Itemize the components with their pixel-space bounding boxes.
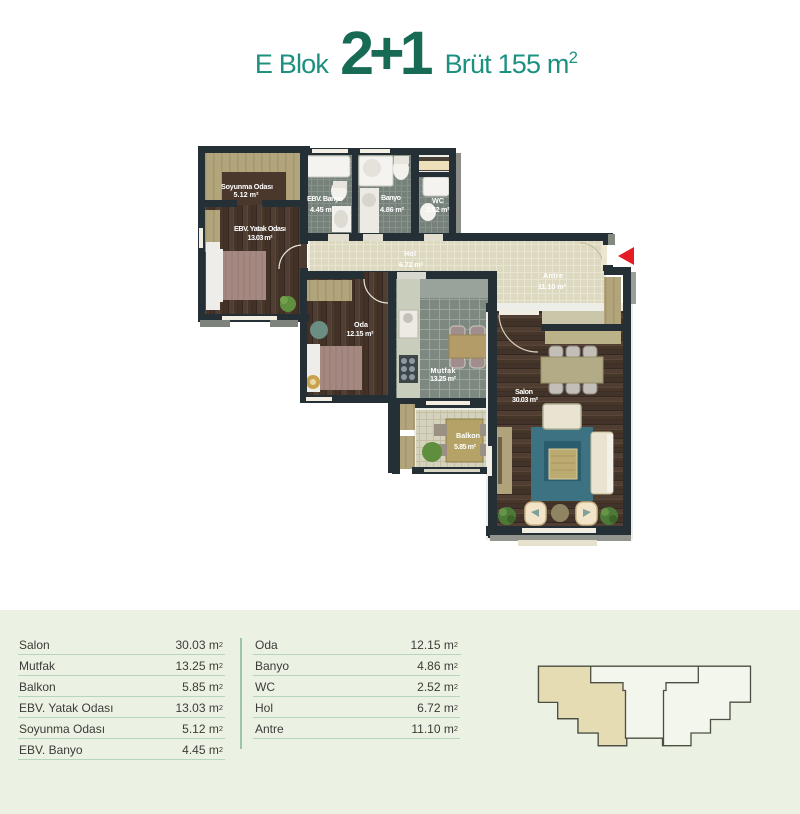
svg-text:Balkon: Balkon bbox=[456, 431, 480, 440]
svg-text:EBV. Banyo: EBV. Banyo bbox=[307, 194, 344, 203]
svg-text:12.15 m²: 12.15 m² bbox=[347, 329, 375, 338]
svg-text:11.10 m²: 11.10 m² bbox=[538, 282, 567, 291]
svg-text:EBV. Yatak Odası: EBV. Yatak Odası bbox=[234, 224, 286, 233]
svg-text:Hol: Hol bbox=[404, 249, 416, 258]
svg-text:6.72 m²: 6.72 m² bbox=[399, 260, 424, 269]
svg-text:5.12 m²: 5.12 m² bbox=[234, 190, 260, 199]
svg-text:4.45 m²: 4.45 m² bbox=[310, 205, 335, 214]
svg-text:5.85 m²: 5.85 m² bbox=[454, 442, 477, 451]
svg-text:13.25 m²: 13.25 m² bbox=[430, 374, 457, 383]
svg-text:13.03 m²: 13.03 m² bbox=[248, 233, 274, 242]
svg-text:Antre: Antre bbox=[543, 271, 563, 280]
svg-text:4.86 m²: 4.86 m² bbox=[380, 205, 405, 214]
svg-text:Banyo: Banyo bbox=[381, 193, 402, 202]
svg-text:Oda: Oda bbox=[354, 320, 369, 329]
svg-text:30.03 m²: 30.03 m² bbox=[512, 395, 539, 404]
svg-text:WC: WC bbox=[432, 196, 444, 205]
svg-text:2.52 m²: 2.52 m² bbox=[427, 205, 451, 214]
